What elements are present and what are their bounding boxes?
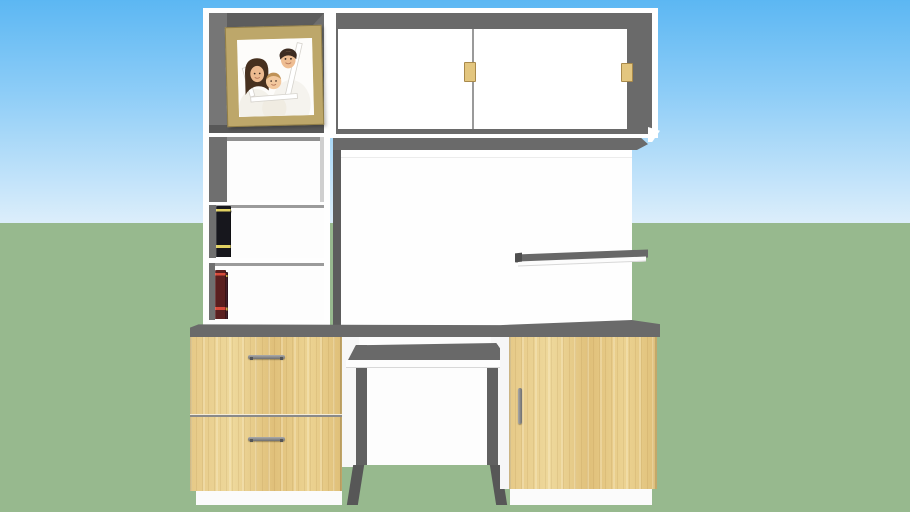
cabinet-door-handle[interactable] — [518, 388, 522, 424]
compartment-left-side — [209, 137, 227, 202]
family-photo-frame — [225, 25, 325, 128]
family-photo-illustration — [237, 38, 314, 117]
left-door-handle[interactable] — [464, 62, 476, 82]
bottom-drawer-handle[interactable] — [248, 437, 285, 441]
cabinet-underside-panel — [333, 137, 648, 150]
book-shelf-lower — [209, 263, 324, 320]
drawer-separator — [190, 414, 342, 417]
back-panel-top-board — [341, 150, 632, 158]
desk-back-panel — [333, 150, 632, 328]
left-shelf-column — [203, 8, 330, 328]
right-door-handle[interactable] — [621, 63, 633, 82]
hutch-sliding-door-cabinet — [330, 8, 658, 138]
empty-shelf-compartment — [209, 137, 324, 202]
sliding-doors[interactable] — [338, 29, 627, 129]
top-drawer-handle[interactable] — [248, 355, 285, 359]
compartment-top-shade — [215, 263, 324, 266]
back-panel-side-edge — [333, 150, 341, 328]
3d-viewport[interactable] — [0, 0, 910, 512]
compartment-right-edge — [320, 137, 324, 202]
keyboard-tray-front-edge[interactable] — [346, 360, 505, 368]
cabinet-interior-bezel — [336, 13, 652, 134]
book-shelf-upper — [209, 205, 324, 258]
right-kick-plate — [510, 489, 652, 505]
book-spine — [216, 206, 231, 257]
compartment-top-shade — [227, 137, 324, 141]
right-cabinet-door[interactable] — [509, 337, 657, 489]
left-kick-plate — [196, 491, 342, 505]
book-spine — [215, 270, 226, 319]
left-drawer-unit — [190, 337, 342, 491]
compartment-top-shade — [216, 205, 324, 208]
photo-compartment — [209, 13, 324, 133]
wall-shelf-end-cap — [515, 253, 522, 263]
compartment-left-side — [209, 205, 216, 258]
family-photo-svg — [237, 38, 314, 117]
